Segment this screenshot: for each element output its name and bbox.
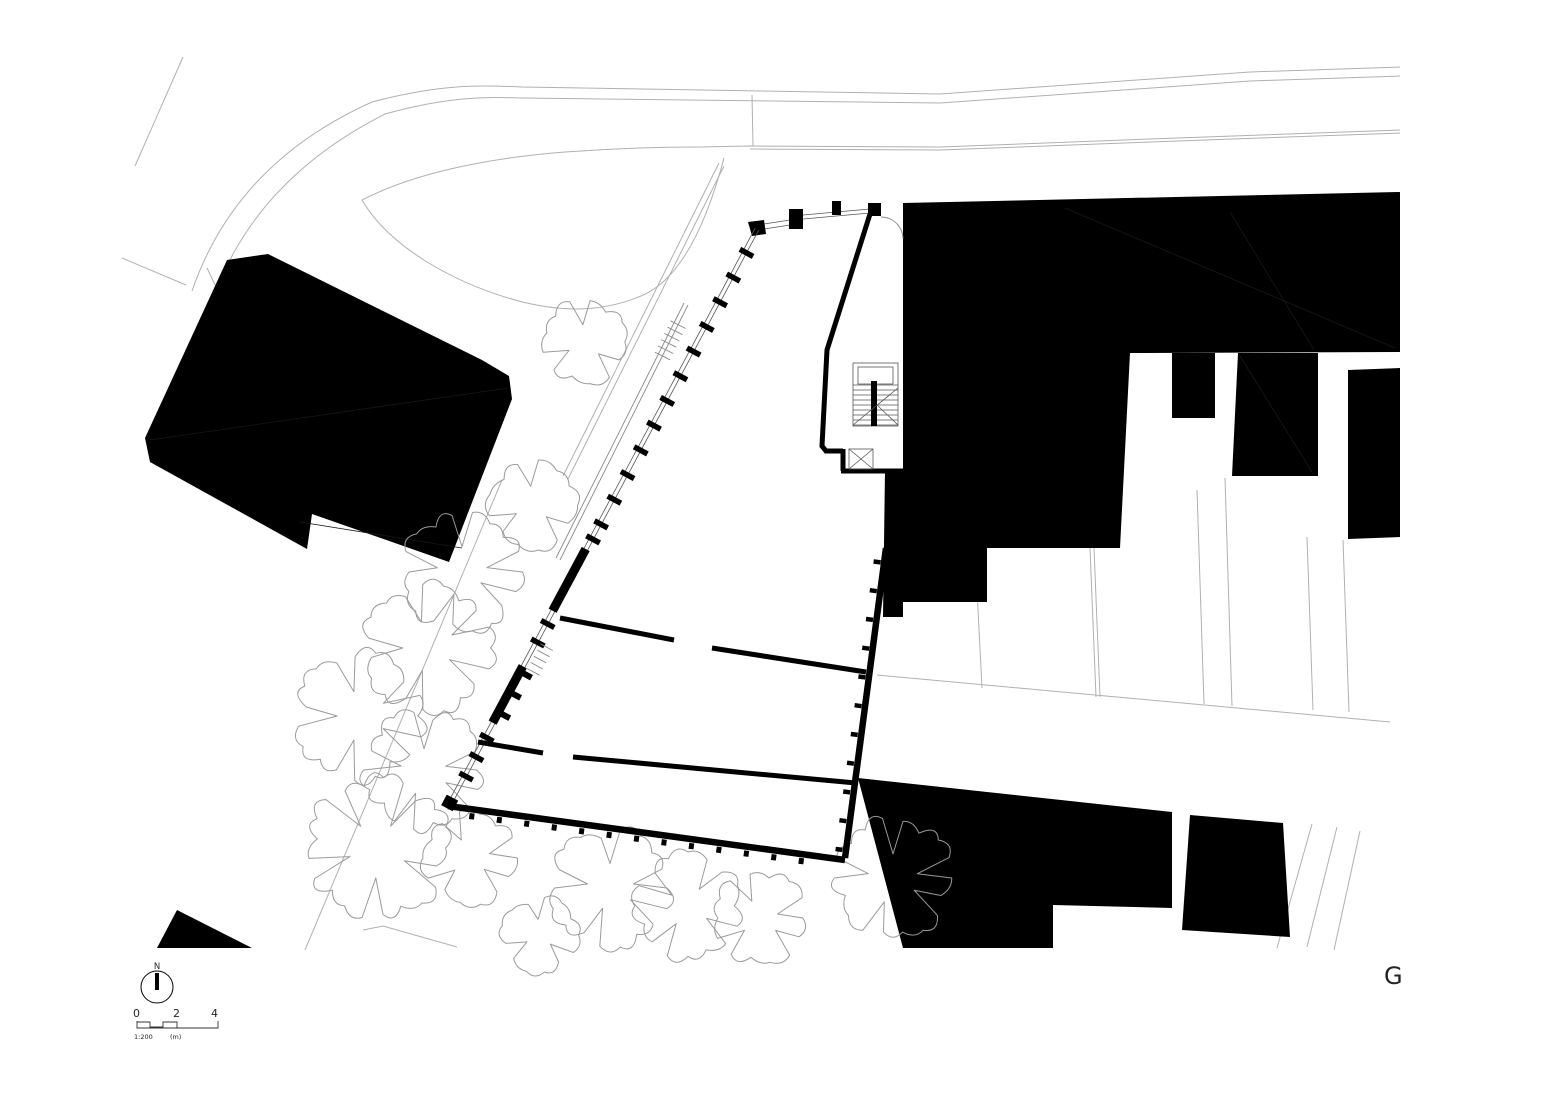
perimeter-walls <box>448 548 886 864</box>
building-masses <box>145 192 1400 948</box>
kerb-diag-se-3 <box>1334 831 1360 950</box>
kerb-corner-s <box>363 926 457 947</box>
tree-canopy <box>632 849 743 962</box>
boundary-line-nw <box>135 57 183 166</box>
path-kerb <box>563 163 719 476</box>
tree-canopy <box>363 579 497 715</box>
plot-line-4 <box>1225 478 1232 706</box>
south-wall-tick <box>691 843 692 849</box>
east-wall-tick <box>843 792 850 793</box>
east-wall-tick <box>870 590 877 591</box>
east-wall-tick <box>839 820 846 821</box>
south-wall-tick <box>664 840 665 846</box>
stair-stringer <box>871 381 877 426</box>
east-wall-tick <box>866 619 873 620</box>
building-east-block-a <box>1232 353 1318 476</box>
steps-hatch-line <box>534 656 546 663</box>
building-west <box>145 254 512 562</box>
colonnade-column-tick <box>674 373 687 380</box>
facade-glass-1 <box>764 220 790 224</box>
colonnade-column-tick <box>541 621 554 628</box>
building-south-east <box>1182 815 1290 937</box>
building-east-main <box>883 192 1400 617</box>
steps-hatch-line <box>531 662 543 669</box>
colonnade-column-tick <box>460 773 473 780</box>
scale-unit: (m) <box>170 1033 181 1041</box>
east-wall-tick <box>862 648 869 649</box>
south-wall-tick <box>499 817 500 823</box>
east-wall-tick <box>858 677 865 678</box>
shaft-box <box>849 449 873 469</box>
east-wall-tick <box>847 763 854 764</box>
sheet-label: G <box>1384 962 1403 990</box>
partition-2b <box>573 757 856 783</box>
colonnade-column-tick <box>621 472 634 479</box>
road-crossing-line <box>752 95 753 146</box>
colonnade-column-tick <box>713 299 726 306</box>
boundary-line-w <box>122 258 186 285</box>
partition-2a <box>478 742 543 753</box>
facade-pier-3 <box>868 203 881 216</box>
tree-canopy <box>550 827 674 952</box>
colonnade-column-tick <box>740 249 753 256</box>
east-wall-tick <box>851 734 858 735</box>
building-east-block-b <box>1348 368 1400 539</box>
green-island-edge <box>362 158 724 309</box>
south-wall-tick <box>718 847 719 853</box>
building-sw-triangle <box>157 910 252 948</box>
facade-pier-1 <box>789 209 803 229</box>
colonnade-column-tick <box>700 323 713 330</box>
south-wall-tick <box>526 821 527 827</box>
east-wall-tick <box>874 562 881 563</box>
tree-canopy <box>714 873 805 964</box>
scale-mark-4: 4 <box>211 1007 218 1020</box>
scale-bar-shape <box>137 1021 218 1028</box>
south-wall-tick <box>609 832 610 838</box>
building-south-main <box>858 778 1172 948</box>
partition-1b <box>712 648 866 672</box>
north-facade <box>748 201 881 236</box>
colonnade-column-tick <box>661 397 674 404</box>
building-east-tab <box>1172 353 1215 418</box>
exterior-steps <box>527 321 686 675</box>
kerb-diag-se-2 <box>1307 827 1337 947</box>
colonnade <box>446 228 759 808</box>
plot-line-5 <box>1307 537 1313 710</box>
staircase <box>853 363 898 426</box>
south-wall-tick <box>801 858 802 864</box>
partition-1a <box>560 618 674 640</box>
colonnade-column-tick <box>586 536 599 543</box>
tree-canopy <box>499 896 580 976</box>
facade-glass-2 <box>764 225 790 229</box>
drawing-sheet: N 0 2 4 1:200 (m) G <box>0 0 1556 1100</box>
facade-pier-2 <box>832 201 841 215</box>
colonnade-column-tick <box>595 521 608 528</box>
south-wall-tick <box>581 828 582 834</box>
south-wall <box>448 806 845 860</box>
colonnade-column-tick <box>634 447 647 454</box>
road-lower-kerb <box>362 130 1400 200</box>
scale-ratio: 1:200 <box>134 1033 153 1041</box>
door-swing-arc <box>881 217 903 239</box>
scale-bar: 0 2 4 1:200 (m) <box>133 1007 218 1041</box>
north-needle <box>155 973 159 990</box>
east-wall-tick <box>836 849 843 850</box>
colonnade-column-tick <box>608 496 621 503</box>
south-wall-tick <box>773 854 774 860</box>
south-wall-tick <box>636 836 637 842</box>
scale-mark-0: 0 <box>133 1007 140 1020</box>
steps-hatch-line <box>537 650 549 657</box>
tree-canopy <box>295 647 427 785</box>
south-wall-tick <box>746 851 747 857</box>
colonnade-column-tick <box>470 754 483 761</box>
east-wall-tick <box>855 705 862 706</box>
plot-line-3 <box>1197 490 1204 704</box>
plot-line-6 <box>1343 540 1349 712</box>
north-label: N <box>154 962 160 972</box>
south-wall-tick <box>554 825 555 831</box>
site-plan-canvas: N 0 2 4 1:200 (m) G <box>0 0 1556 1100</box>
colonnade-column-tick <box>687 348 700 355</box>
colonnade-wall-seg-1 <box>553 549 586 611</box>
colonnade-column-tick <box>727 274 740 281</box>
scale-mark-2: 2 <box>173 1007 180 1020</box>
north-arrow: N <box>141 962 173 1003</box>
entry-wall <box>822 214 870 451</box>
tree-canopy <box>308 773 451 918</box>
colonnade-column-tick <box>647 422 660 429</box>
south-wall-tick <box>471 813 472 819</box>
tree-canopy <box>485 460 579 551</box>
